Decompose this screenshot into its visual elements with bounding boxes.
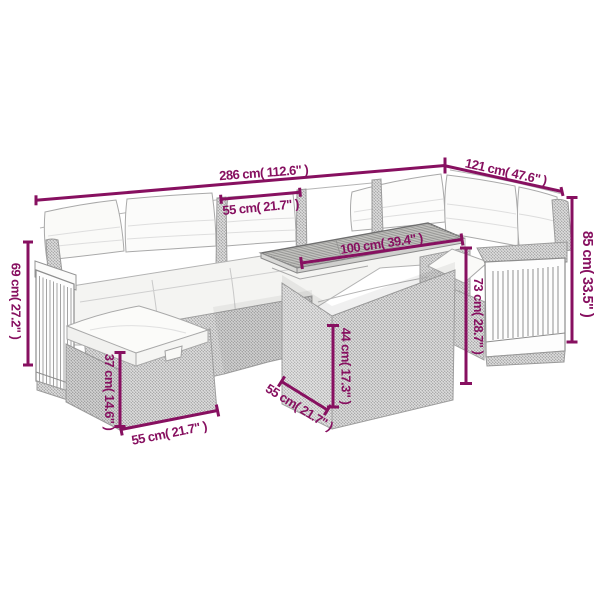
svg-text:44 cm( 17.3" ): 44 cm( 17.3" )	[339, 328, 354, 405]
svg-text:85 cm( 33.5" ): 85 cm( 33.5" )	[579, 231, 595, 318]
svg-text:69 cm( 27.2" ): 69 cm( 27.2" )	[9, 263, 24, 340]
svg-text:73 cm( 28.7" ): 73 cm( 28.7" )	[471, 278, 486, 355]
svg-text:37 cm( 14.6" ): 37 cm( 14.6" )	[102, 354, 117, 431]
